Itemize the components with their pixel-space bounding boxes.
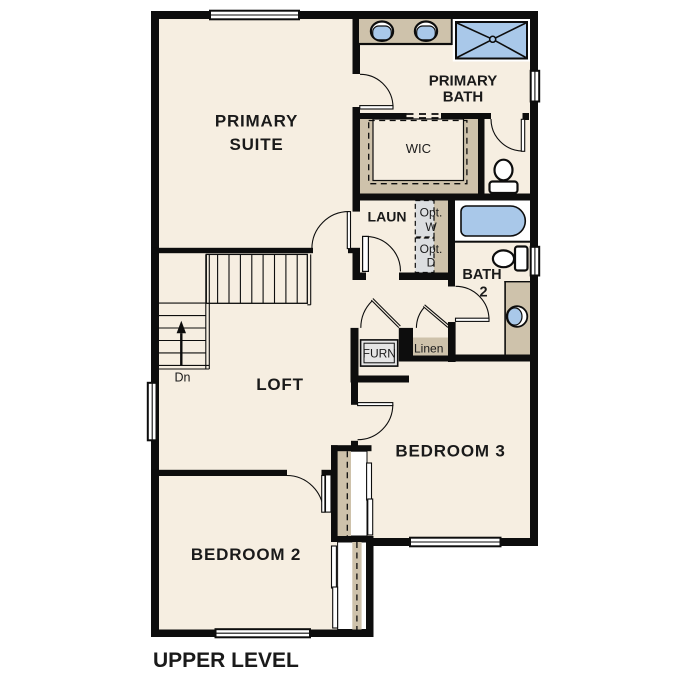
svg-text:BATH: BATH xyxy=(443,89,484,106)
svg-text:Dn: Dn xyxy=(175,371,191,385)
svg-text:PRIMARY: PRIMARY xyxy=(429,73,498,90)
svg-text:WIC: WIC xyxy=(406,141,431,156)
svg-text:D: D xyxy=(427,256,436,270)
svg-text:BEDROOM 3: BEDROOM 3 xyxy=(395,442,505,461)
svg-text:Opt.: Opt. xyxy=(420,206,443,220)
svg-text:W: W xyxy=(425,220,437,234)
svg-text:PRIMARY: PRIMARY xyxy=(215,112,298,131)
svg-text:SUITE: SUITE xyxy=(229,135,283,154)
svg-text:LAUN: LAUN xyxy=(368,209,407,225)
svg-text:BEDROOM 2: BEDROOM 2 xyxy=(191,545,301,564)
svg-text:Linen: Linen xyxy=(414,342,443,356)
svg-text:Opt.: Opt. xyxy=(420,242,443,256)
svg-text:LOFT: LOFT xyxy=(256,375,304,394)
svg-text:BATH: BATH xyxy=(462,267,501,283)
svg-text:UPPER LEVEL: UPPER LEVEL xyxy=(153,649,299,672)
svg-text:FURN: FURN xyxy=(363,347,396,361)
